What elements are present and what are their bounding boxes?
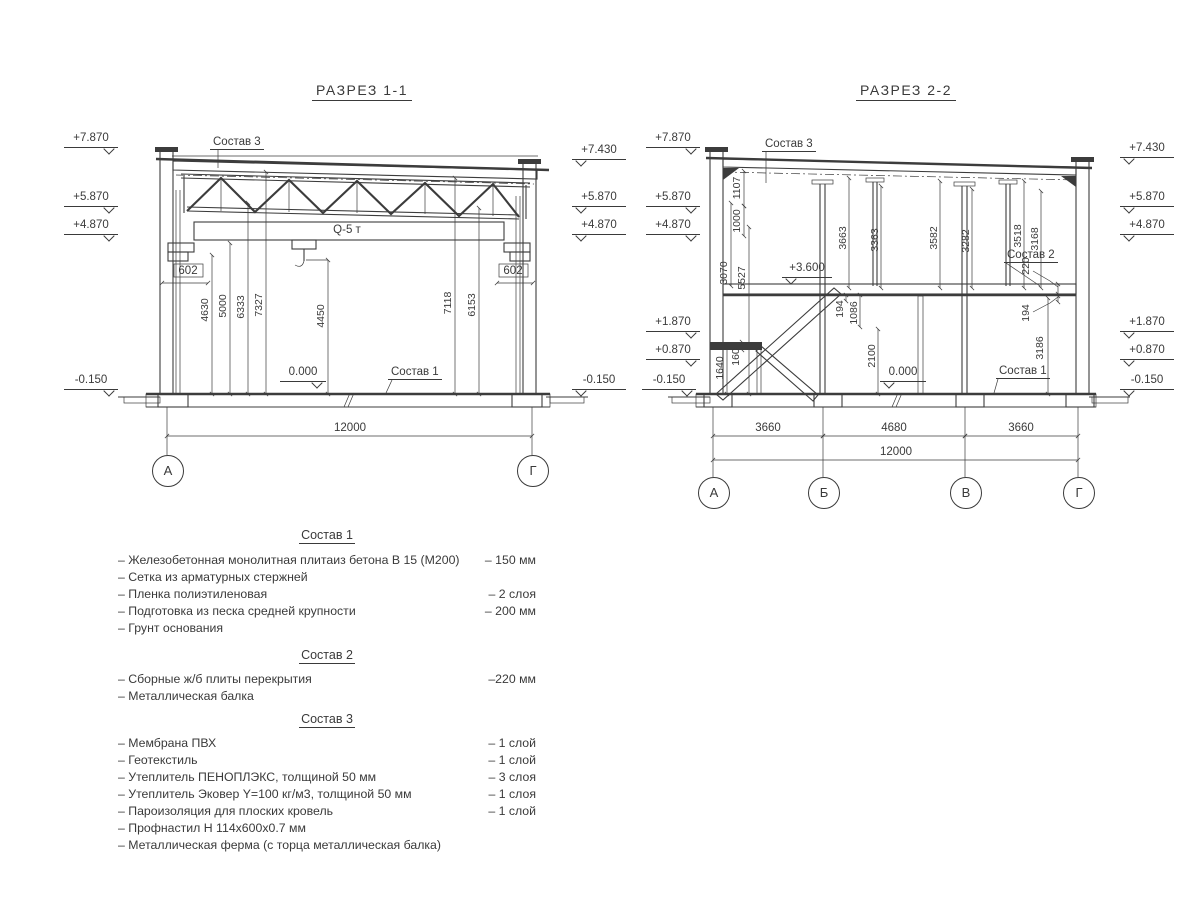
sostav1-leader-label: Состав 1 <box>388 366 442 380</box>
dimension-label: 7327 <box>253 293 265 316</box>
axis-bubble-b: Б <box>808 477 840 509</box>
elevation-mark: +1.870 <box>646 316 700 332</box>
corbel-dim: 602 <box>178 265 197 277</box>
dimension-label: 3363 <box>869 228 881 251</box>
axis-bubble-g: Г <box>517 455 549 487</box>
span-dimension: 3660 <box>755 422 781 434</box>
dimension-label: 3186 <box>1034 336 1046 359</box>
elevation-mark: +5.870 <box>646 191 700 207</box>
list-item: – Профнастил Н 114х600х0.7 мм <box>118 821 536 835</box>
list-item: – Пароизоляция для плоских кровель– 1 сл… <box>118 804 536 818</box>
dimension-label: 1107 <box>731 177 743 200</box>
elevation-mark: +7.870 <box>646 132 700 148</box>
dimension-label: 4630 <box>199 298 211 321</box>
list-item: – Сетка из арматурных стержней <box>118 570 536 584</box>
axis-bubble-g: Г <box>1063 477 1095 509</box>
dimension-label: 7118 <box>442 292 454 315</box>
composition1-title: Состав 1 <box>118 528 536 542</box>
axis-bubble-a: А <box>698 477 730 509</box>
dimension-label: 3070 <box>718 261 730 284</box>
elevation-mark: +4.870 <box>64 219 118 235</box>
zero-level-mark: 0.000 <box>880 366 926 382</box>
sostav1-leader-label: Состав 1 <box>996 365 1050 379</box>
total-dimension: 12000 <box>880 446 912 458</box>
elevation-mark: -0.150 <box>1120 374 1174 390</box>
elevation-mark: +0.870 <box>1120 344 1174 360</box>
dimension-label: 1640 <box>714 356 726 379</box>
dimension-label: 4450 <box>315 304 327 327</box>
elevation-mark: +7.430 <box>1120 142 1174 158</box>
crane-capacity-label: Q-5 т <box>333 224 361 236</box>
elevation-mark: +0.870 <box>646 344 700 360</box>
section2-title: РАЗРЕЗ 2-2 <box>856 82 956 101</box>
sostav3-leader-label: Состав 3 <box>210 136 264 150</box>
elevation-mark: +5.870 <box>572 191 626 207</box>
list-item: – Металлическая балка <box>118 689 536 703</box>
composition2-title: Состав 2 <box>118 648 536 662</box>
axis-bubble-v: В <box>950 477 982 509</box>
list-item: – Пленка полиэтиленовая– 2 слоя <box>118 587 536 601</box>
dimension-label: 3518 <box>1012 224 1024 247</box>
drawing-canvas: РАЗРЕЗ 1-1 +7.870 +5.870 +4.870 -0.150 +… <box>0 0 1200 900</box>
sostav3-leader-label: Состав 3 <box>762 138 816 152</box>
section1-title: РАЗРЕЗ 1-1 <box>312 82 412 101</box>
elevation-mark: +7.430 <box>572 144 626 160</box>
dimension-label: 3168 <box>1029 227 1041 250</box>
dimension-label: 160 <box>730 348 742 366</box>
dimension-label: 3282 <box>960 229 972 252</box>
dimension-label: 6333 <box>235 295 247 318</box>
list-item: – Грунт основания <box>118 621 536 635</box>
dimension-label: 2100 <box>866 344 878 367</box>
total-dimension: 12000 <box>334 422 366 434</box>
list-item: – Металлическая ферма (с торца металличе… <box>118 838 536 852</box>
span-dimension: 3660 <box>1008 422 1034 434</box>
dimension-label: 194 <box>834 300 846 318</box>
elevation-mark: +7.870 <box>64 132 118 148</box>
dimension-label: 3582 <box>928 226 940 249</box>
span-dimension: 4680 <box>881 422 907 434</box>
list-item: – Утеплитель Эковер Y=100 кг/м3, толщино… <box>118 787 536 801</box>
list-item: – Сборные ж/б плиты перекрытия–220 мм <box>118 672 536 686</box>
elevation-mark: -0.150 <box>642 374 696 390</box>
elevation-mark: +5.870 <box>1120 191 1174 207</box>
elevation-mark: +1.870 <box>1120 316 1174 332</box>
list-item: – Утеплитель ПЕНОПЛЭКС, толщиной 50 мм– … <box>118 770 536 784</box>
dimension-label: 194 <box>1020 304 1032 322</box>
composition3-title: Состав 3 <box>118 712 536 726</box>
axis-bubble-a: А <box>152 455 184 487</box>
list-item: – Подготовка из песка средней крупности–… <box>118 604 536 618</box>
dimension-label: 5000 <box>217 294 229 317</box>
dimension-label: 220 <box>1020 257 1032 275</box>
list-item: – Геотекстиль– 1 слой <box>118 753 536 767</box>
elevation-mark: +4.870 <box>1120 219 1174 235</box>
dimension-label: 1000 <box>731 209 743 232</box>
list-item: – Мембрана ПВХ– 1 слой <box>118 736 536 750</box>
elevation-mark: +4.870 <box>646 219 700 235</box>
dimension-label: 1086 <box>848 301 860 324</box>
list-item: – Железобетонная монолитная плитаиз бето… <box>118 553 536 567</box>
elevation-mark: -0.150 <box>572 374 626 390</box>
dimension-label: 5527 <box>736 266 748 289</box>
elevation-mark: -0.150 <box>64 374 118 390</box>
dimension-label: 3663 <box>837 226 849 249</box>
elevation-mark: +5.870 <box>64 191 118 207</box>
dimension-label: 6153 <box>466 293 478 316</box>
corbel-dim: 602 <box>503 265 522 277</box>
level-mark-360: +3.600 <box>782 262 832 278</box>
elevation-mark: +4.870 <box>572 219 626 235</box>
zero-level-mark: 0.000 <box>280 366 326 382</box>
